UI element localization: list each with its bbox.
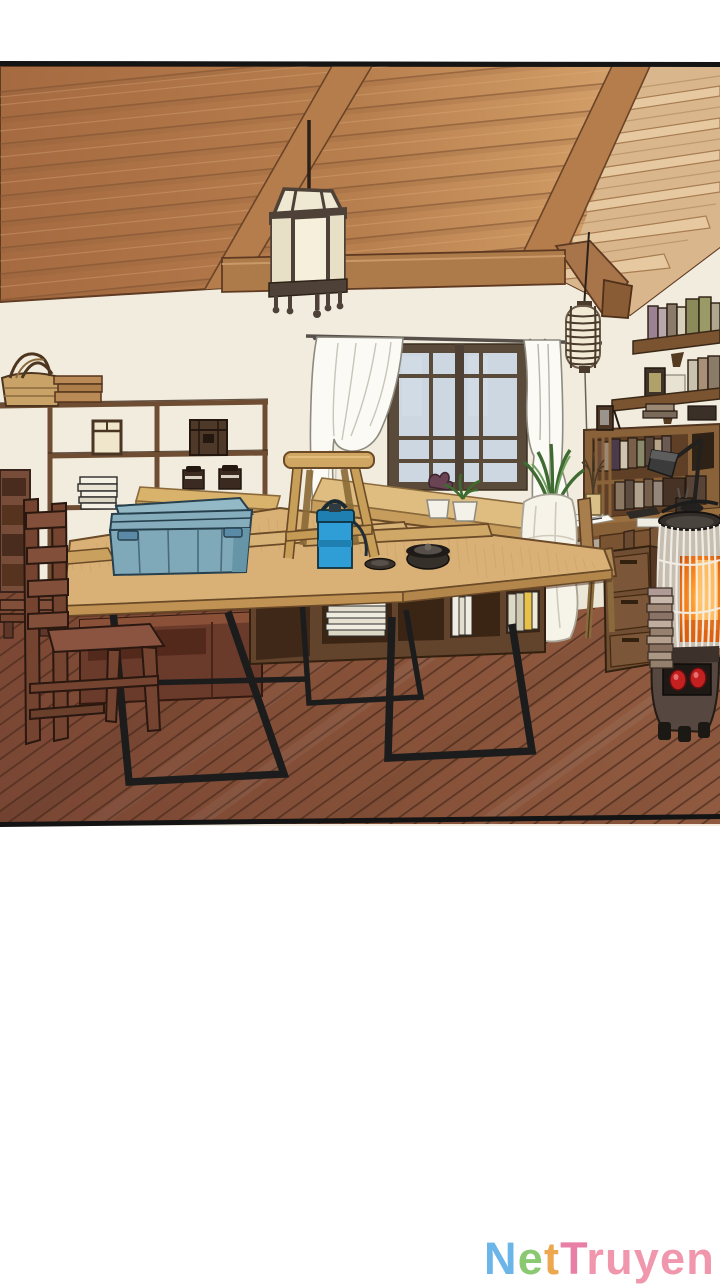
svg-text:NetTruyen: NetTruyen [484,1233,715,1284]
